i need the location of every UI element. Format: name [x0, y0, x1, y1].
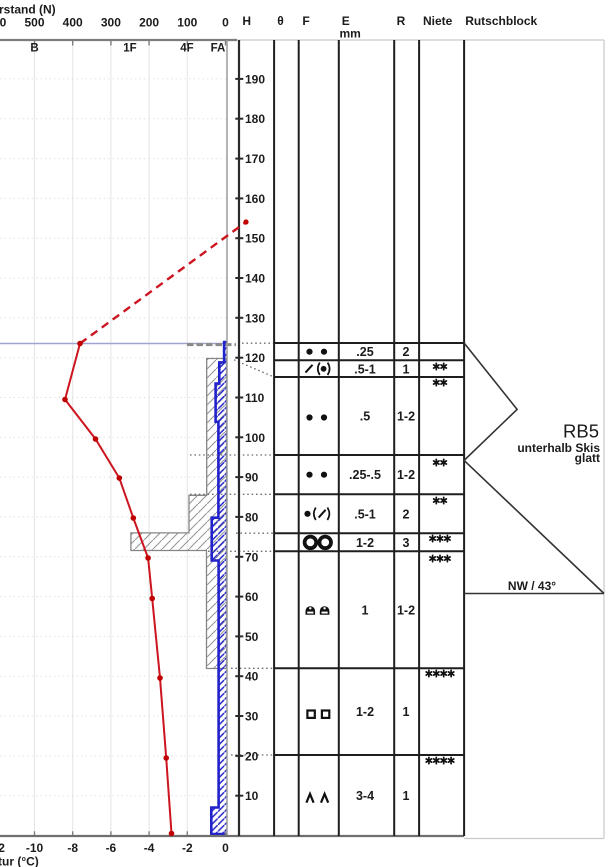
svg-text:170: 170 [245, 152, 265, 166]
svg-text:70: 70 [245, 550, 259, 564]
svg-text:120: 120 [245, 351, 265, 365]
svg-text:mm: mm [340, 27, 361, 41]
svg-text:20: 20 [245, 749, 259, 763]
svg-text:-8: -8 [67, 841, 78, 855]
svg-text:10: 10 [245, 789, 259, 803]
svg-text:0: 0 [222, 16, 229, 30]
svg-text:glatt: glatt [575, 451, 600, 465]
svg-text:.5-1: .5-1 [354, 362, 376, 376]
svg-text:1: 1 [403, 362, 410, 376]
svg-text:500: 500 [24, 16, 44, 30]
svg-text:180: 180 [245, 112, 265, 126]
svg-text:NW / 43°: NW / 43° [508, 579, 556, 593]
svg-text:-4: -4 [144, 841, 155, 855]
svg-text:-6: -6 [106, 841, 117, 855]
svg-text:1-2: 1-2 [356, 705, 374, 719]
svg-text:110: 110 [245, 391, 265, 405]
svg-text:θ: θ [277, 14, 284, 28]
svg-text:150: 150 [245, 232, 265, 246]
svg-text:.5: .5 [360, 410, 370, 424]
svg-text:190: 190 [245, 72, 265, 86]
svg-text:100: 100 [177, 16, 197, 30]
svg-text:1: 1 [362, 603, 369, 617]
svg-text:Niete: Niete [423, 14, 453, 28]
svg-text:160: 160 [245, 192, 265, 206]
svg-text:1: 1 [403, 789, 410, 803]
svg-text:400: 400 [63, 16, 83, 30]
svg-text:1F: 1F [123, 43, 136, 55]
svg-text:1-2: 1-2 [397, 410, 415, 424]
svg-text:-2: -2 [182, 841, 193, 855]
svg-text:1-2: 1-2 [397, 468, 415, 482]
svg-text:tur (°C): tur (°C) [0, 855, 39, 867]
svg-text:F: F [302, 14, 309, 28]
svg-text:130: 130 [245, 311, 265, 325]
svg-text:B: B [30, 43, 38, 55]
svg-text:60: 60 [245, 590, 259, 604]
svg-text:RB5: RB5 [563, 421, 599, 442]
svg-text:.5-1: .5-1 [354, 507, 376, 521]
svg-text:R: R [397, 14, 406, 28]
svg-text:-10: -10 [26, 841, 44, 855]
svg-text:90: 90 [245, 471, 259, 485]
svg-text:200: 200 [139, 16, 159, 30]
svg-text:.25-.5: .25-.5 [349, 468, 381, 482]
svg-text:2: 2 [403, 345, 410, 359]
svg-text:1: 1 [403, 705, 410, 719]
svg-text:80: 80 [245, 510, 259, 524]
svg-text:rstand (N): rstand (N) [0, 3, 56, 17]
svg-text:H: H [242, 14, 251, 28]
svg-text:40: 40 [245, 670, 259, 684]
svg-text:4F: 4F [180, 43, 193, 55]
svg-text:.25: .25 [356, 345, 373, 359]
svg-text:3: 3 [403, 536, 410, 550]
svg-text:300: 300 [101, 16, 121, 30]
svg-text:50: 50 [245, 630, 259, 644]
svg-text:3-4: 3-4 [356, 789, 374, 803]
svg-text:2: 2 [403, 507, 410, 521]
svg-text:-12: -12 [0, 841, 5, 855]
svg-text:140: 140 [245, 272, 265, 286]
svg-text:600: 600 [0, 16, 7, 30]
svg-text:0: 0 [222, 841, 229, 855]
svg-text:100: 100 [245, 431, 265, 445]
svg-text:1-2: 1-2 [397, 603, 415, 617]
svg-text:30: 30 [245, 710, 259, 724]
svg-text:1-2: 1-2 [356, 536, 374, 550]
svg-text:FA: FA [211, 43, 226, 55]
svg-text:Rutschblock: Rutschblock [465, 14, 537, 28]
